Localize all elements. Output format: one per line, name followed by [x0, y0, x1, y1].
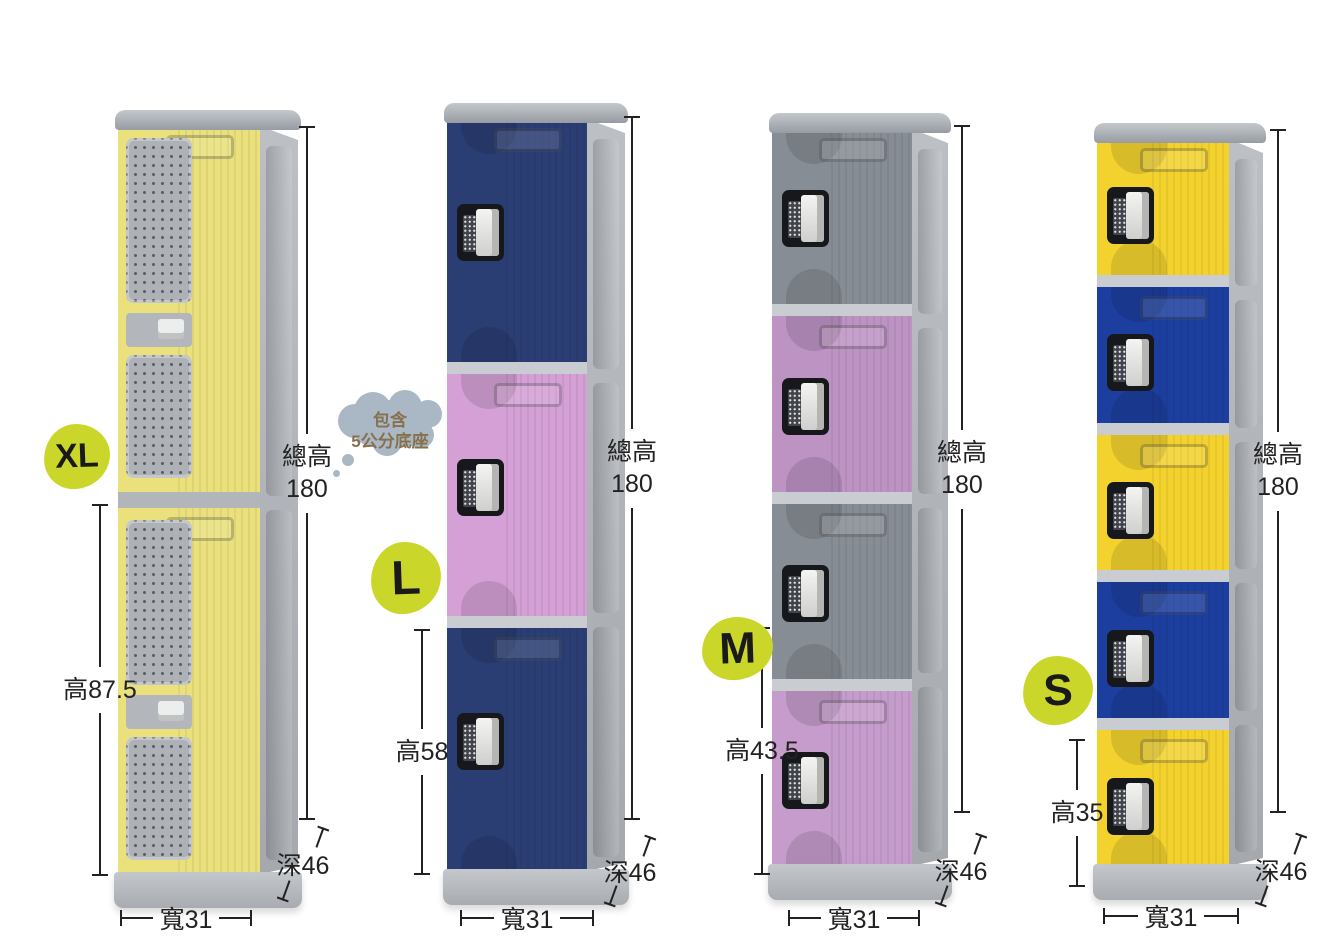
door-height-dimension-xl: 高87.5 [52, 504, 148, 876]
label-slot [1140, 444, 1208, 468]
locker-l-door [447, 374, 587, 617]
door-bump [786, 457, 842, 492]
depth-dimension-xl: 深46 [261, 827, 345, 901]
label-slot [819, 138, 887, 162]
lock-handle-icon [782, 190, 829, 247]
lock-handle-icon [1107, 187, 1154, 244]
lock-handle-icon [1107, 334, 1154, 391]
locker-s-door [1097, 435, 1229, 571]
door-height-label-l: 高58 [396, 736, 449, 769]
locker-m-door [772, 316, 912, 491]
total-height-value-s: 180 [1257, 471, 1299, 504]
door-bump [1111, 388, 1167, 423]
label-slot [494, 637, 562, 661]
depth-label-s: 深46 [1255, 852, 1308, 888]
size-badge-l: L [370, 541, 442, 615]
width-dimension-s: 寬31 [1103, 900, 1239, 932]
lock-handle-icon [782, 565, 829, 622]
total-height-value-m: 180 [941, 469, 983, 502]
width-dimension-xl: 寬31 [120, 902, 252, 934]
width-dimension-m: 寬31 [788, 902, 920, 934]
depth-dimension-m: 深46 [919, 834, 1003, 906]
thought-bubble-line1: 包含 [373, 410, 407, 431]
lock-handle-icon [126, 313, 192, 347]
lock-handle-icon [1107, 482, 1154, 539]
lock-handle-icon [457, 204, 504, 261]
locker-m-door [772, 129, 912, 304]
label-slot [1140, 591, 1208, 615]
lock-handle-icon [782, 378, 829, 435]
door-bump [1111, 240, 1167, 275]
thought-bubble-trail-dot [333, 470, 340, 477]
total-height-dimension-m: 總高 180 [914, 125, 1010, 813]
thought-bubble-text: 包含 5公分底座 [338, 410, 442, 453]
label-slot [494, 128, 562, 152]
door-height-dimension-s: 高35 [1029, 739, 1125, 887]
width-label-l: 寬31 [494, 900, 561, 936]
depth-dimension-s: 深46 [1239, 834, 1323, 906]
total-height-label-xl: 總高 [282, 441, 332, 474]
locker-l-door [447, 119, 587, 362]
lock-handle-icon [457, 459, 504, 516]
door-bump [461, 581, 517, 616]
label-slot [494, 383, 562, 407]
door-height-label-m: 高43.5 [725, 735, 799, 768]
vent-grille [126, 355, 192, 478]
depth-label-l: 深46 [604, 853, 657, 889]
total-height-label-m: 總高 [937, 437, 987, 470]
total-height-label-l: 總高 [607, 436, 657, 469]
width-label-s: 寬31 [1138, 898, 1205, 934]
label-slot [819, 513, 887, 537]
width-label-xl: 寬31 [153, 900, 220, 936]
thought-bubble-line2: 5公分底座 [351, 431, 428, 452]
total-height-value-xl: 180 [286, 473, 328, 506]
label-slot [819, 325, 887, 349]
total-height-dimension-l: 總高 180 [584, 116, 680, 820]
locker-s-door [1097, 582, 1229, 718]
depth-label-xl: 深46 [277, 846, 330, 882]
door-height-dimension-l: 高58 [374, 629, 470, 875]
label-slot [819, 700, 887, 724]
locker-s-door [1097, 287, 1229, 423]
size-badge-xl: XL [43, 423, 111, 490]
width-label-m: 寬31 [821, 900, 888, 936]
product-dimension-diagram: XL L M S 包含 5公分底座 總高 180 高87.5 深46 寬31 [0, 0, 1330, 940]
label-slot [1140, 148, 1208, 172]
size-badge-label-m: M [718, 623, 756, 674]
locker-s-door [1097, 139, 1229, 275]
total-height-label-s: 總高 [1253, 439, 1303, 472]
thought-bubble-trail-dot [342, 454, 354, 466]
vent-grille [126, 138, 192, 303]
depth-label-m: 深46 [935, 852, 988, 888]
size-badge-label-xl: XL [55, 436, 100, 476]
thought-bubble: 包含 5公分底座 [338, 390, 450, 486]
size-badge-label-s: S [1042, 665, 1073, 716]
door-bump [461, 327, 517, 362]
label-slot [1140, 296, 1208, 320]
locker-xl-door [118, 126, 260, 492]
label-slot [1140, 739, 1208, 763]
size-badge-s: S [1022, 655, 1094, 726]
lock-handle-icon [1107, 630, 1154, 687]
total-height-value-l: 180 [611, 468, 653, 501]
depth-dimension-l: 深46 [588, 836, 672, 906]
door-height-label-s: 高35 [1051, 797, 1104, 830]
size-badge-label-l: L [390, 550, 421, 606]
door-bump [1111, 535, 1167, 570]
width-dimension-l: 寬31 [460, 902, 594, 934]
total-height-dimension-s: 總高 180 [1230, 129, 1326, 813]
door-bump [786, 269, 842, 304]
door-height-label-xl: 高87.5 [63, 674, 137, 707]
door-bump [1111, 683, 1167, 718]
